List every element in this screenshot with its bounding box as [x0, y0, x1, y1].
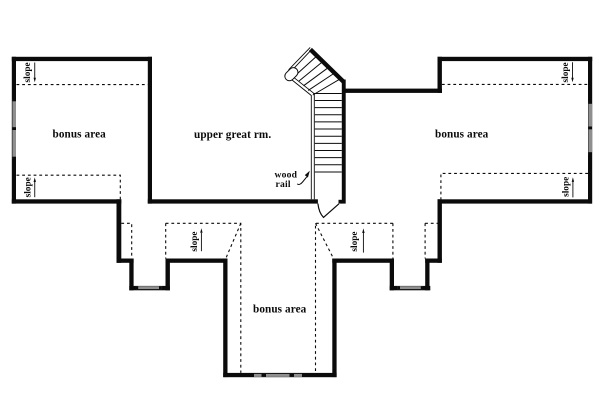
svg-text:bonus area: bonus area [53, 129, 107, 141]
svg-text:upper great rm.: upper great rm. [194, 129, 271, 141]
svg-text:slope: slope [350, 231, 360, 251]
svg-text:slope: slope [23, 62, 33, 82]
svg-text:rail: rail [276, 179, 291, 190]
svg-text:slope: slope [561, 62, 571, 82]
svg-text:slope: slope [190, 231, 200, 251]
svg-text:bonus area: bonus area [253, 303, 307, 315]
svg-text:slope: slope [562, 177, 572, 197]
svg-text:slope: slope [24, 177, 34, 197]
svg-text:bonus area: bonus area [435, 129, 489, 141]
